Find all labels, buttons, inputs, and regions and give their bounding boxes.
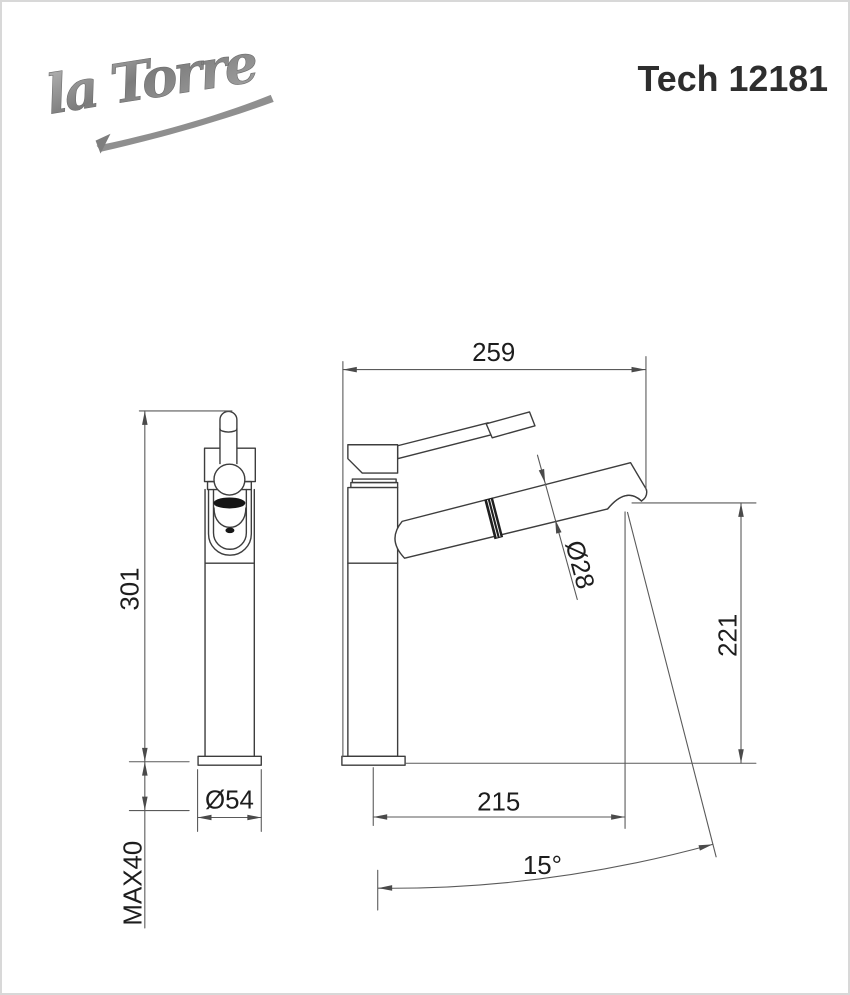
side-spout-tube bbox=[395, 463, 647, 559]
front-handle bbox=[220, 411, 237, 464]
arrowhead-259-left bbox=[343, 367, 357, 373]
arrowhead-221-top bbox=[738, 503, 744, 517]
dim-text-d54: Ø54 bbox=[205, 787, 254, 815]
dim-text-301: 301 bbox=[116, 567, 144, 610]
side-lever-grip bbox=[486, 412, 535, 438]
dim-text-259: 259 bbox=[472, 339, 515, 367]
technical-drawing-canvas: la Torre Tech 12181 bbox=[2, 2, 848, 993]
front-joint-sphere bbox=[214, 464, 245, 495]
arrowhead-259-right bbox=[632, 367, 646, 373]
side-column bbox=[348, 563, 398, 756]
arrowhead-max40-bottom bbox=[142, 797, 148, 811]
side-lever-bar bbox=[398, 423, 492, 459]
side-head-block bbox=[348, 445, 398, 473]
dim-text-215: 215 bbox=[477, 789, 520, 817]
front-base-flange bbox=[198, 756, 261, 765]
brand-logo: la Torre bbox=[42, 31, 274, 153]
arrowhead-d28-top bbox=[539, 469, 545, 483]
datasheet-page: la Torre Tech 12181 bbox=[0, 0, 850, 995]
arrowhead-15-left bbox=[378, 885, 392, 891]
front-spray-dot bbox=[225, 528, 234, 534]
model-code: Tech 12181 bbox=[638, 59, 829, 99]
arrowhead-15-right bbox=[699, 844, 713, 850]
front-spray-bowl bbox=[214, 508, 246, 527]
arrowhead-d54-right bbox=[247, 815, 261, 821]
arrowhead-301-bottom bbox=[142, 748, 148, 762]
dim-text-15deg: 15° bbox=[523, 852, 562, 880]
arrowhead-max40-top bbox=[142, 762, 148, 776]
arrowhead-221-bottom bbox=[738, 749, 744, 763]
side-body bbox=[348, 488, 398, 564]
side-base-flange bbox=[342, 756, 405, 765]
dim-text-max40: MAX40 bbox=[119, 841, 147, 926]
side-view bbox=[342, 412, 647, 765]
arrowhead-215-left bbox=[373, 814, 387, 820]
arrowhead-215-right bbox=[611, 814, 625, 820]
front-aerator bbox=[214, 498, 246, 509]
dim-text-d28: Ø28 bbox=[559, 538, 599, 592]
side-collar-lower bbox=[351, 483, 398, 488]
arrowhead-301-top bbox=[142, 411, 148, 425]
front-view bbox=[198, 411, 261, 765]
side-dimensions: 259 Ø28 221 215 15° bbox=[343, 339, 756, 910]
dim-text-221: 221 bbox=[715, 614, 743, 657]
swivel-diagonal-line bbox=[628, 512, 717, 856]
arrowhead-d54-left bbox=[198, 815, 212, 821]
